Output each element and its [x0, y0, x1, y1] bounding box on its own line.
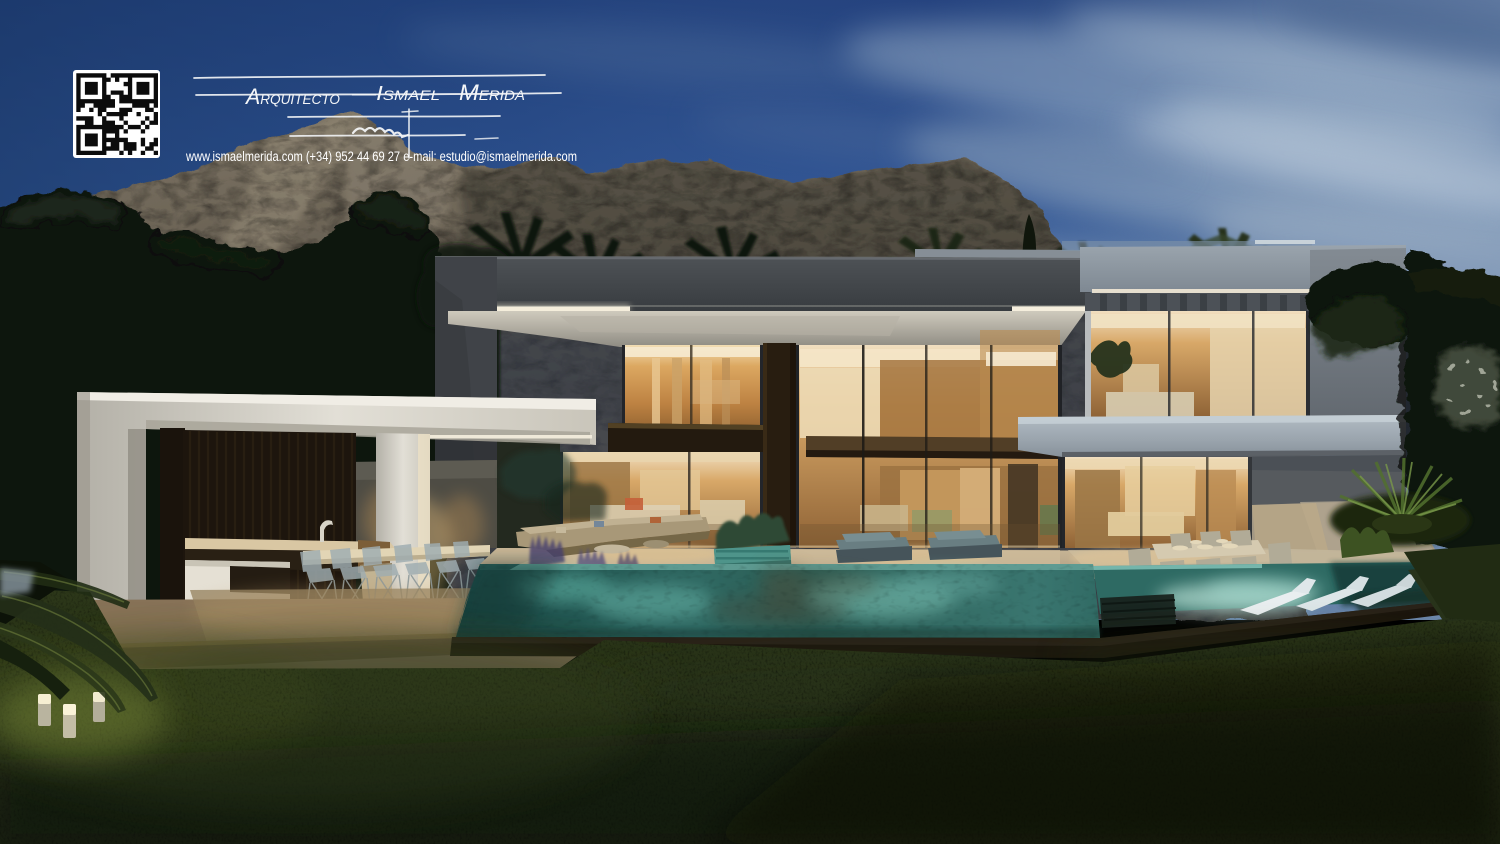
svg-text:—ISMAEL: —ISMAEL [351, 83, 440, 105]
svg-text:www.ismaelmerida.com (+34) 95: www.ismaelmerida.com (+34) 952 44 69 27 … [185, 149, 577, 164]
